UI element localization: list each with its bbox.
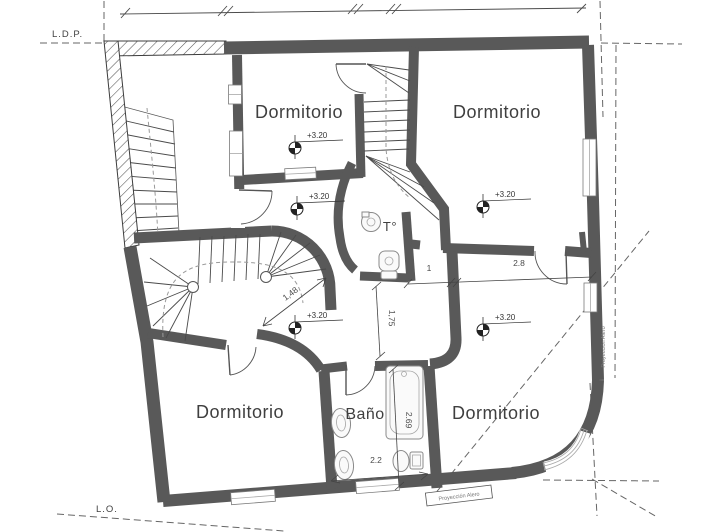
door-top-left-bedroom — [336, 64, 366, 93]
dim-bath-v: 2.69 — [404, 412, 415, 429]
dim-passage: 1,75 — [387, 310, 398, 327]
top-dimension-line — [120, 4, 586, 18]
svg-text:+3.20: +3.20 — [495, 313, 516, 322]
projection-side-label: Proyección Alero — [601, 326, 607, 367]
floor-plan-canvas: 1 2.8 1,75 1,48 2.69 2.2 — [0, 0, 720, 532]
room-label-bedroom-bottom-left: Dormitorio — [196, 402, 284, 422]
elevation-marker-icon: +3.20 — [477, 190, 531, 218]
svg-text:+3.20: +3.20 — [495, 190, 516, 199]
stair-newel — [261, 272, 272, 283]
elevation-marker-icon: +3.20 — [289, 311, 343, 339]
hatched-wall-top — [104, 41, 226, 56]
door-bottom-left-bedroom — [228, 345, 256, 375]
stair-newel — [188, 282, 199, 293]
toilet-room-wc — [379, 251, 399, 279]
projection-bottom-label-box: Proyección Alero — [425, 485, 492, 506]
room-label-bedroom-top-right: Dormitorio — [453, 102, 541, 122]
room-label-bathroom: Baño — [345, 406, 384, 423]
door-bathroom — [346, 365, 375, 395]
room-label-toilet: T° — [383, 219, 397, 234]
dim-hall-small: 1 — [427, 263, 432, 273]
elevation-marker-icon: +3.20 — [477, 313, 531, 341]
dim-hall-large: 2.8 — [513, 258, 525, 268]
svg-text:+3.20: +3.20 — [307, 311, 328, 320]
dim-bath-h: 2.2 — [370, 455, 382, 465]
floor-plan-svg: 1 2.8 1,75 1,48 2.69 2.2 — [0, 0, 720, 532]
ldp-label: L.D.P. — [52, 29, 83, 40]
top-center-stair — [364, 64, 439, 220]
elevation-marker-icon: +3.20 — [289, 131, 343, 159]
passage-dimension: 1,75 — [372, 282, 397, 360]
toilet-room-sink — [362, 212, 381, 232]
svg-text:+3.20: +3.20 — [307, 131, 328, 140]
lo-label: L.O. — [96, 504, 118, 515]
door-opening — [231, 189, 245, 228]
room-label-bedroom-top-left: Dormitorio — [255, 102, 343, 122]
room-label-bedroom-bottom-right: Dormitorio — [452, 403, 540, 423]
svg-text:+3.20: +3.20 — [309, 192, 330, 201]
